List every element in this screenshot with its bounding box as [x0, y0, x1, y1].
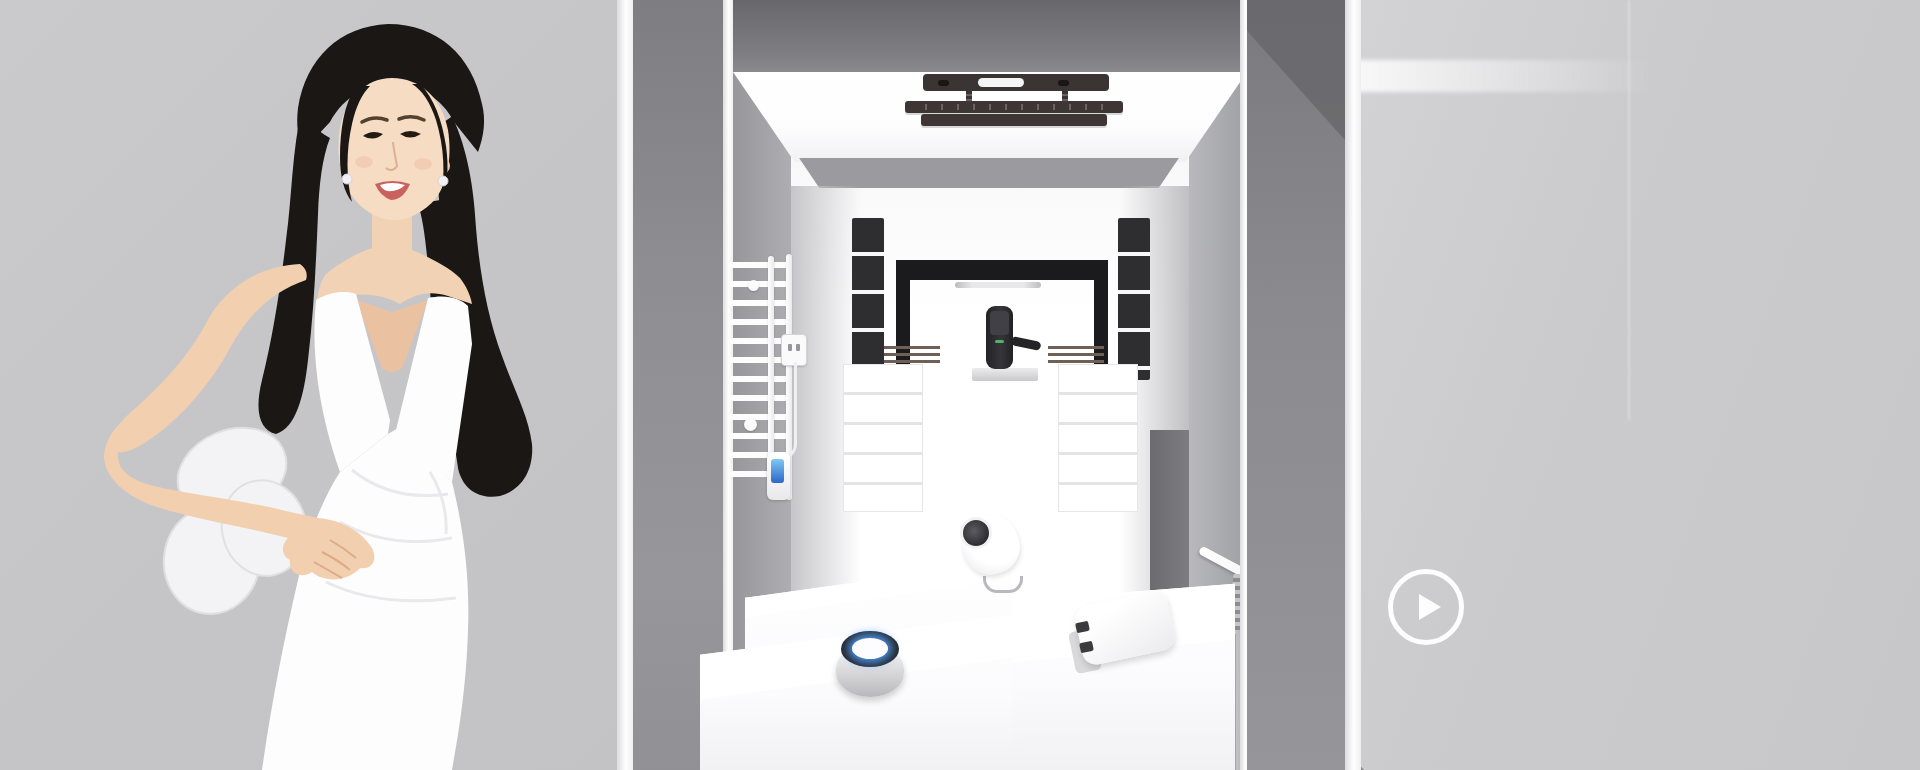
controller-display — [771, 459, 784, 483]
spokesmodel — [60, 0, 580, 770]
wall-light-bar — [955, 282, 1041, 288]
socket-hole-left — [788, 344, 792, 351]
power-cable — [780, 362, 797, 460]
face — [339, 78, 451, 220]
towel-rack-hook-bottom — [744, 418, 757, 431]
back-shelf-column-right — [1118, 218, 1150, 380]
pearl-earring-left — [342, 174, 352, 184]
pearl-earring-right — [438, 176, 448, 186]
showroom-left-outer-edge — [617, 0, 633, 770]
lock-keypad-screen — [990, 311, 1009, 335]
display-shelf-right — [1058, 364, 1138, 512]
display-shelf-left — [843, 364, 923, 512]
speaker-led-ring — [852, 638, 888, 659]
drying-rack-bar-upper — [905, 101, 1123, 113]
blush-left — [355, 156, 373, 168]
drying-rack-bar-lower — [921, 114, 1107, 126]
drying-rack-lamp-left — [938, 80, 949, 86]
corridor-lintel — [787, 158, 1191, 188]
play-video-button[interactable] — [1388, 569, 1464, 645]
smart-hub-gateway — [1070, 596, 1178, 682]
lock-indicator-light — [995, 340, 1004, 343]
smart-speaker — [836, 629, 904, 699]
camera-lens-icon — [960, 517, 992, 549]
play-icon — [1419, 594, 1441, 620]
camera-stand — [983, 576, 1023, 593]
towel-rack-controller — [767, 452, 790, 500]
towel-rack-hook-top — [748, 280, 759, 291]
lock-pedestal — [972, 368, 1038, 381]
drying-rack-lamp-right — [1058, 80, 1069, 86]
socket-hole-right — [796, 344, 800, 351]
black-frame-top — [896, 260, 1108, 280]
drying-rack-rod-ticks — [911, 104, 1117, 110]
wall-highlight-streak — [1356, 60, 1656, 92]
back-shelf-column-left — [852, 218, 884, 380]
hero-banner — [0, 0, 1920, 770]
shelf-slats-right — [1048, 346, 1104, 366]
shelf-slats-left — [884, 346, 940, 366]
blush-right — [414, 158, 432, 170]
showroom-top-band — [733, 0, 1247, 72]
drying-rack-light — [978, 78, 1024, 87]
wall-seam — [1628, 0, 1630, 420]
showroom-right-outer-edge — [1345, 0, 1361, 770]
background-wall-right — [1356, 0, 1920, 770]
